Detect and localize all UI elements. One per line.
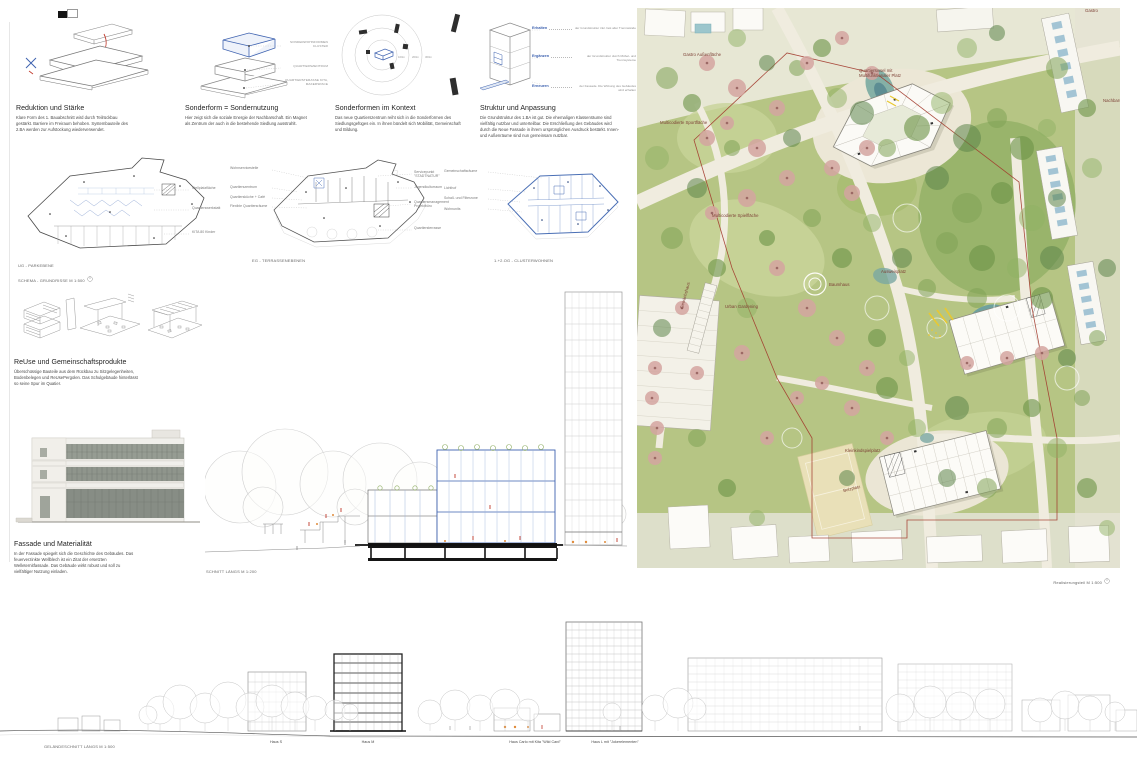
callout-sonderwohnformen: SONDERWOHNFORMEN CLUSTER <box>280 40 328 48</box>
plan-label-wohnunits: Wohnunits <box>444 207 486 211</box>
siteplan-drawing <box>637 8 1120 568</box>
siteplan-caption-row: Realisierungsteil M 1:500 <box>1020 571 1110 589</box>
plan-og-drawing <box>442 152 642 252</box>
schnitt-drawing <box>205 282 627 564</box>
reuse-shelf <box>24 298 76 338</box>
reuse-pergola <box>148 301 202 338</box>
plan-label-schallzone: Schall- und Filterzone <box>444 196 486 200</box>
concept-drawing-kontext: 100m 200m 300m <box>335 8 480 100</box>
label-spielflaeche: Multicodierte Spielfläche <box>712 213 759 218</box>
step-desc: der Fassade. Die Wirkung des Gebäudes wi… <box>574 84 636 92</box>
callout-quartierszentrum: QUARTIERSZENTRUM <box>280 64 328 68</box>
reuse-title: ReUse und Gemeinschaftsprodukte <box>14 359 206 366</box>
plan-ug-block: Stellplatzfläche Quartierswerkstatt KITA… <box>14 152 226 278</box>
concept-block-reduktion: Reduktion und Stärke Klare Form des 1. B… <box>16 8 164 148</box>
label-quartiersinsel: Quartiersinsel mit Multifunktionaler Pla… <box>859 68 917 79</box>
label-gastro: Gastro <box>1085 8 1098 13</box>
label-baumhaus: Baumhaus <box>829 282 850 287</box>
reuse-pallet <box>80 294 140 336</box>
concept-title: Reduktion und Stärke <box>16 105 164 112</box>
concept-title: Sonderform = Sondernutzung <box>185 105 330 112</box>
step-label: Erhalten <box>532 26 547 30</box>
struktur-steps: Erhalten der Grundstruktur inkl. fast al… <box>532 24 636 104</box>
plan-ug-caption-2-row: SCHEMA - GRUNDRISSE M 1:500 <box>18 269 93 287</box>
plan-label-stellplatz: Stellplatzfläche <box>192 186 224 190</box>
concept-body: Klare Form des 1. Bauabschnitt wird durc… <box>16 115 134 133</box>
fassade-title: Fassade und Materialität <box>14 541 206 548</box>
plan-label-management: Quartiersmanagement Projektbüro <box>414 200 444 209</box>
plan-label-qzentrum: Quartierszentrum <box>230 185 272 189</box>
label-nachbarschaft: Nachbarschaft <box>1103 98 1120 103</box>
terrain-section-drawing <box>0 600 1137 740</box>
concept-block-sonderform: SONDERWOHNFORMEN CLUSTER QUARTIERSZENTRU… <box>185 8 330 148</box>
reuse-block: ReUse und Gemeinschaftsprodukte Überschü… <box>14 288 206 408</box>
plan-og-caption: 1.+2.OG - CLUSTERWOHNEN <box>494 258 553 263</box>
tower-section <box>565 292 622 545</box>
label-urban-gardening: Urban Gardening <box>725 304 758 309</box>
radius-200: 200m <box>412 55 420 59</box>
page-margin-line <box>9 22 10 562</box>
step-erneuern: Erneuern der Fassade. Die Wirkung des Ge… <box>532 84 636 92</box>
fassade-elevation <box>14 428 204 528</box>
concept-body: Das neue Quartierszentrum reiht sich in … <box>335 115 463 133</box>
concept-drawing-reduktion <box>16 8 164 100</box>
left-houses <box>58 716 120 731</box>
plan-label-servicepunkt: Servicepunkt "STADTNATUR" <box>414 170 444 179</box>
leader-dots <box>549 28 572 30</box>
step-desc: der Grundstruktur inkl. fast aller Trenn… <box>574 26 636 30</box>
label-gastro-area: Gastro Außenfläche <box>683 52 721 57</box>
step-label: Erneuern <box>532 84 549 88</box>
plan-label-kita: KITA 80 Kinder <box>192 230 224 234</box>
label-kleinkindspielplatz: Kleinkindspielplatz <box>845 448 880 453</box>
north-arrow-icon <box>1104 571 1110 589</box>
leader-dots <box>551 56 572 58</box>
concept-title: Struktur und Anpassung <box>480 105 638 112</box>
fassade-block: Fassade und Materialität In der Fassade … <box>14 428 206 558</box>
presentation-board: { "colors":{"accent_blue":"#3f63b0","acc… <box>0 0 1137 758</box>
siteplan-caption: Realisierungsteil M 1:500 <box>1053 580 1102 585</box>
leader-dots <box>551 86 572 88</box>
label-sportflaeche: Multicodierte Sportfläche <box>660 120 707 125</box>
plan-label-terrasse: Quartiersterrasse <box>414 226 444 230</box>
terrain-caption: GELÄNDESCHNITT LÄNGS M 1:500 <box>44 744 115 749</box>
plan-ug-caption-2: SCHEMA - GRUNDRISSE M 1:500 <box>18 278 85 283</box>
plan-label-wohnservice: Wohnservicestelle <box>230 166 272 170</box>
plan-label-jugend: Jugendkulturraum <box>414 185 444 189</box>
step-ergaenzen: Ergänzen der Grundstruktur durch Möbel- … <box>532 54 636 62</box>
schnitt-caption: SCHNITT LÄNGS M 1:200 <box>206 569 257 574</box>
label-haus-m: Haus M <box>348 740 388 744</box>
plan-label-flexible: Flexible Quartiersräume <box>230 204 272 208</box>
siteplan: Gastro Außenfläche Gastro Quartiersinsel… <box>637 8 1120 568</box>
fassade-body: In der Fassade spiegelt sich die Geschic… <box>14 551 139 575</box>
reuse-drawing <box>14 288 204 348</box>
step-desc: der Grundstruktur durch Möbel- und Trenn… <box>574 54 636 62</box>
plan-ug-drawing <box>14 152 214 256</box>
label-haus-s: Haus S <box>256 740 296 744</box>
plan-label-gemeinschaft: Gemeinschaftsräume <box>444 169 486 173</box>
reuse-body: Überschüssige Bauteile aus dem Rückbau z… <box>14 369 139 387</box>
concept-block-kontext: 100m 200m 300m Sonderformen im Kontext D… <box>335 8 480 148</box>
label-haus-l: Haus L mit "Jokerelementen" <box>570 740 660 744</box>
plan-label-lichthof: Lichthof <box>444 186 486 190</box>
radius-300: 300m <box>425 55 433 59</box>
concept-title: Sonderformen im Kontext <box>335 105 480 112</box>
concept-body: Hier zeigt sich die soziale Energie der … <box>185 115 307 127</box>
plan-label-kueche: Quartiersküche + Café <box>230 195 272 199</box>
plan-ug-caption-1: UG - PARKEBENE <box>18 263 54 268</box>
north-arrow-icon <box>87 269 93 287</box>
plan-og-block: Gemeinschaftsräume Lichthof Schall- und … <box>442 152 642 278</box>
haus-m-section <box>330 654 406 731</box>
label-ausweisplatz: Ausweisplatz <box>881 269 906 274</box>
step-erhalten: Erhalten der Grundstruktur inkl. fast al… <box>532 26 636 30</box>
step-label: Ergänzen <box>532 54 549 58</box>
plan-eg-caption: EG - TERRASSENEBENEN <box>252 258 305 263</box>
radius-100: 100m <box>398 55 406 59</box>
plan-label-werkstatt: Quartierswerkstatt <box>192 206 224 210</box>
plan-eg-block: Wohnservicestelle Quartierszentrum Quart… <box>228 152 444 278</box>
concept-block-struktur: Erhalten der Grundstruktur inkl. fast al… <box>480 8 638 148</box>
concept-body: Die Grundstruktur des 1.BA ist gut. Die … <box>480 115 620 139</box>
callout-quartiersterrasse: QUARTIERSTERASSE KITA, MAKERSPACE <box>280 78 328 86</box>
